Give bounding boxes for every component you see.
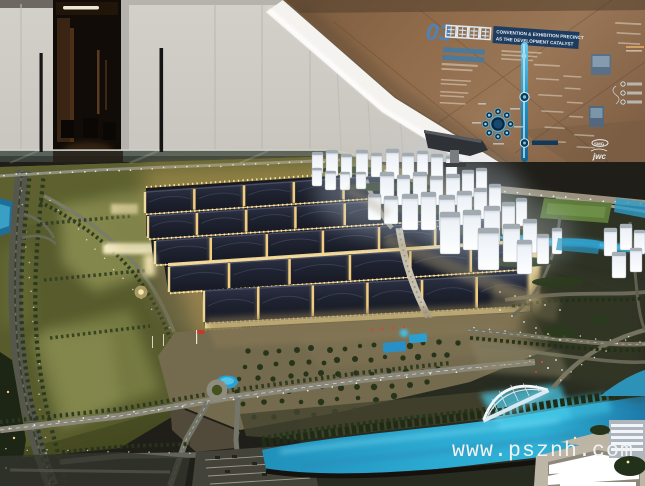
svg-text:www.psznh.com: www.psznh.com [452,439,634,463]
svg-text:SMG: SMG [594,142,605,147]
svg-text:03: 03 [425,18,452,45]
svg-text:jwc: jwc [592,152,606,161]
